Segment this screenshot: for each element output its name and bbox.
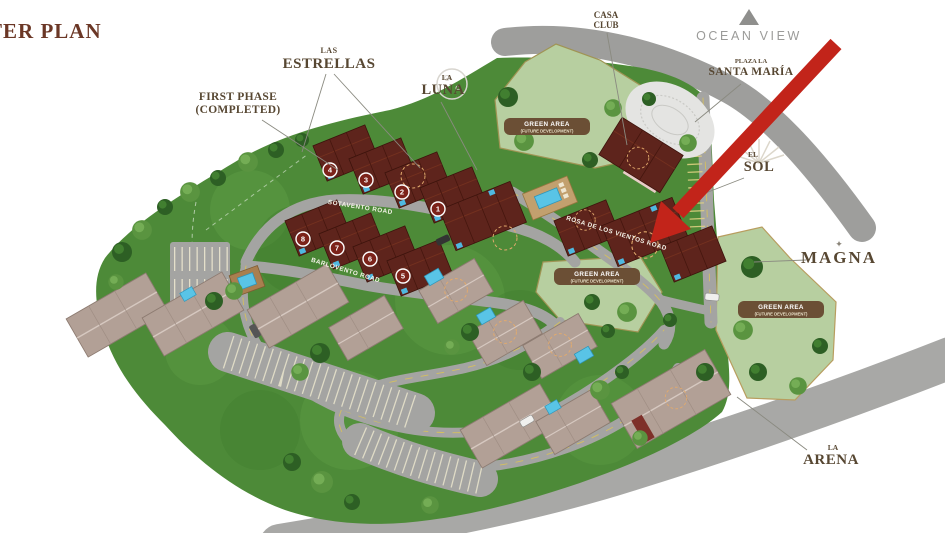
svg-text:CASA: CASA xyxy=(594,10,619,20)
casa-club-label: CASA CLUB xyxy=(593,10,618,30)
green-area-badge-north: GREEN AREA (FUTURE DEVELOPMENT) xyxy=(504,118,590,135)
la-arena-label: LA ARENA xyxy=(803,443,859,468)
svg-text:SANTA MARÍA: SANTA MARÍA xyxy=(708,64,793,78)
badge-3: 3 xyxy=(364,176,368,185)
first-phase-label: FIRST PHASE (COMPLETED) xyxy=(195,91,280,116)
svg-text:EL: EL xyxy=(748,150,758,159)
svg-text:LUNA: LUNA xyxy=(421,82,464,98)
badge-7: 7 xyxy=(335,244,339,253)
svg-text:GREEN AREA: GREEN AREA xyxy=(574,271,620,278)
ocean-view-text: OCEAN VIEW xyxy=(696,29,802,43)
svg-text:LAS: LAS xyxy=(320,46,337,55)
svg-text:CLUB: CLUB xyxy=(593,20,618,30)
ocean-view-label: OCEAN VIEW xyxy=(696,9,802,43)
master-plan-map: 1 2 3 4 5 6 7 8 GREEN AREA (FUTURE DEVEL… xyxy=(0,0,945,533)
badge-6: 6 xyxy=(368,255,372,264)
svg-text:SOL: SOL xyxy=(744,159,775,175)
master-plan-page: 1 2 3 4 5 6 7 8 GREEN AREA (FUTURE DEVEL… xyxy=(0,0,945,533)
badge-8: 8 xyxy=(301,235,305,244)
svg-text:LA: LA xyxy=(828,443,839,452)
svg-text:GREEN AREA: GREEN AREA xyxy=(758,304,804,311)
svg-text:(FUTURE DEVELOPMENT): (FUTURE DEVELOPMENT) xyxy=(755,312,808,317)
green-area-badge-east: GREEN AREA (FUTURE DEVELOPMENT) xyxy=(738,301,824,318)
svg-text:MAGNA: MAGNA xyxy=(801,248,877,267)
svg-text:ARENA: ARENA xyxy=(803,452,859,468)
svg-text:PLAZA LA: PLAZA LA xyxy=(735,58,768,65)
badge-2: 2 xyxy=(400,188,404,197)
svg-text:ESTRELLAS: ESTRELLAS xyxy=(283,56,376,72)
svg-text:(COMPLETED): (COMPLETED) xyxy=(195,104,280,116)
mountain-icon xyxy=(739,9,759,25)
la-luna-label: LA LUNA xyxy=(421,69,467,99)
las-estrellas-label: LAS ESTRELLAS xyxy=(283,46,376,72)
svg-text:LA: LA xyxy=(442,73,453,82)
svg-text:(FUTURE DEVELOPMENT): (FUTURE DEVELOPMENT) xyxy=(571,279,624,284)
page-title: MASTER PLAN xyxy=(0,19,102,43)
badge-1: 1 xyxy=(436,205,440,214)
svg-text:(FUTURE DEVELOPMENT): (FUTURE DEVELOPMENT) xyxy=(521,129,574,134)
magna-label: ✦ MAGNA xyxy=(801,239,877,267)
plaza-santa-maria-label: PLAZA LA SANTA MARÍA xyxy=(708,58,793,78)
green-area-badge-center: GREEN AREA (FUTURE DEVELOPMENT) xyxy=(554,268,640,285)
svg-text:GREEN AREA: GREEN AREA xyxy=(524,121,570,128)
badge-5: 5 xyxy=(401,272,405,281)
svg-text:FIRST PHASE: FIRST PHASE xyxy=(199,91,277,103)
